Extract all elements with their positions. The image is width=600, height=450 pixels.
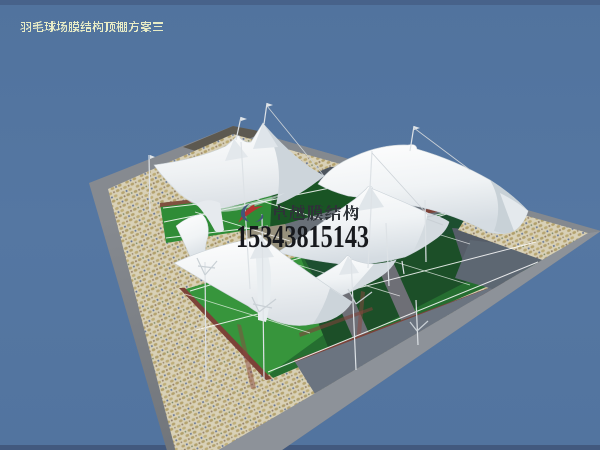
svg-text:15343815143: 15343815143 <box>236 218 369 254</box>
